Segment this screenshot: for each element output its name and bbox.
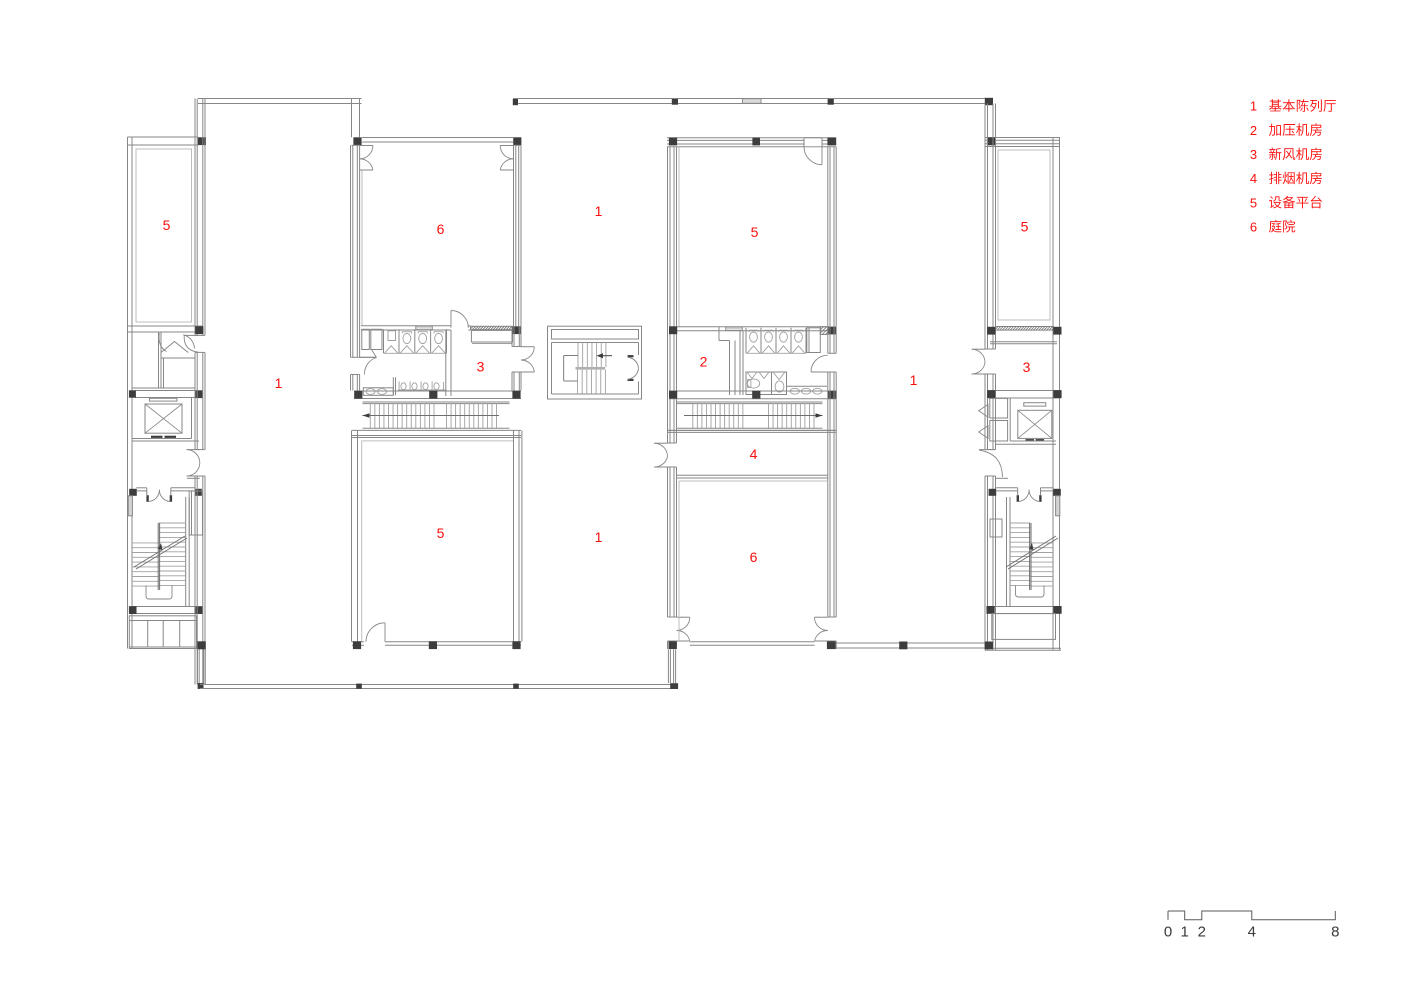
svg-text:5: 5 [163,217,171,233]
svg-text:6: 6 [1250,219,1257,234]
svg-text:4: 4 [1250,171,1257,186]
svg-text:1: 1 [275,375,283,391]
svg-text:1: 1 [595,203,603,219]
svg-text:2: 2 [1198,924,1206,941]
svg-text:6: 6 [437,221,445,237]
svg-text:1: 1 [1250,99,1257,114]
svg-text:2: 2 [700,354,708,370]
svg-text:0: 0 [1164,924,1172,941]
svg-text:5: 5 [751,224,759,240]
svg-text:1: 1 [1181,924,1189,941]
svg-text:1: 1 [910,372,918,388]
svg-text:1: 1 [595,529,603,545]
svg-text:5: 5 [1250,195,1257,210]
svg-text:4: 4 [750,446,758,462]
svg-text:3: 3 [477,358,485,374]
svg-text:8: 8 [1331,924,1339,941]
svg-text:5: 5 [437,525,445,541]
svg-text:2: 2 [1250,123,1257,138]
svg-text:6: 6 [750,549,758,565]
svg-text:4: 4 [1248,924,1256,941]
svg-text:3: 3 [1250,147,1257,162]
svg-text:5: 5 [1021,219,1029,235]
svg-text:3: 3 [1023,359,1031,375]
